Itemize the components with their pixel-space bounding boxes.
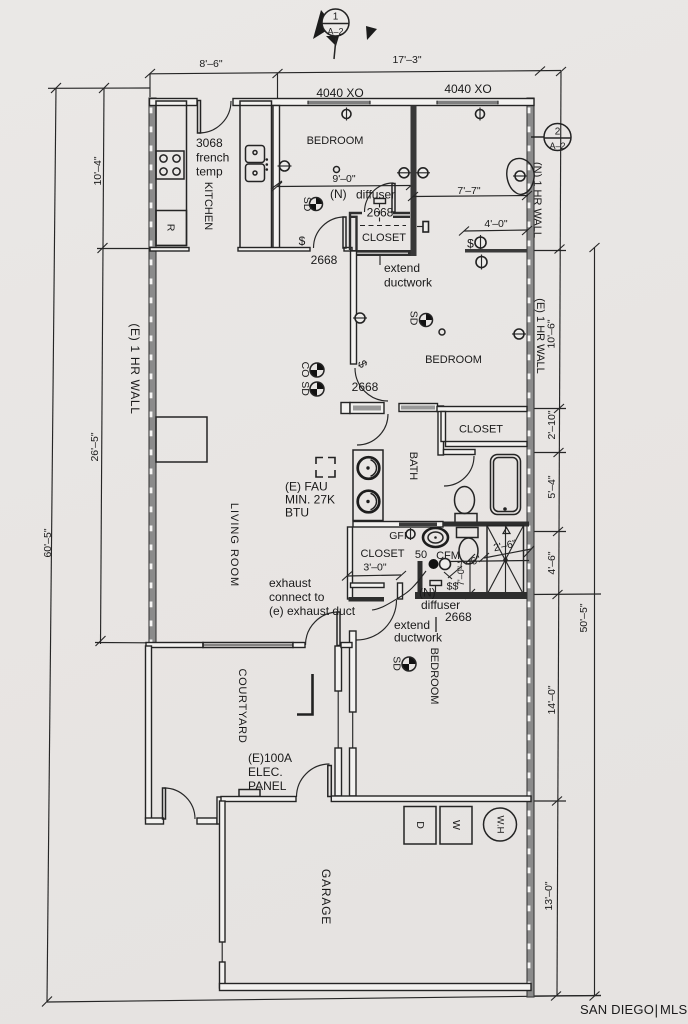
- svg-text:7'–7": 7'–7": [457, 185, 481, 197]
- svg-text:SAN DIEGO: SAN DIEGO: [580, 1002, 654, 1017]
- svg-text:$$: $$: [447, 581, 459, 593]
- svg-text:KITCHEN: KITCHEN: [202, 182, 214, 230]
- svg-text:13'–0": 13'–0": [543, 881, 555, 910]
- svg-text:(E) FAU: (E) FAU: [285, 480, 328, 494]
- svg-text:french: french: [196, 151, 229, 165]
- svg-text:GARAGE: GARAGE: [319, 869, 333, 925]
- svg-text:SD: SD: [391, 656, 403, 671]
- svg-text:BEDROOM: BEDROOM: [307, 135, 364, 147]
- svg-text:CO: CO: [299, 362, 311, 378]
- svg-text:COURTYARD: COURTYARD: [236, 669, 248, 744]
- svg-text:W.H: W.H: [495, 816, 506, 834]
- svg-text:60'–5": 60'–5": [42, 528, 54, 557]
- svg-text:3068: 3068: [196, 136, 223, 150]
- svg-text:4040 XO: 4040 XO: [444, 82, 491, 96]
- svg-text:MLS: MLS: [660, 1002, 687, 1017]
- svg-text:LIVING ROOM: LIVING ROOM: [228, 503, 240, 587]
- svg-text:CLOSET: CLOSET: [362, 232, 406, 244]
- svg-text:$: $: [299, 234, 306, 248]
- svg-text:BEDROOM: BEDROOM: [425, 354, 482, 366]
- svg-text:10'–6": 10'–6": [546, 319, 558, 348]
- svg-text:26'–5": 26'–5": [89, 432, 101, 461]
- svg-text:CLOSET: CLOSET: [459, 424, 503, 436]
- svg-text:2668: 2668: [311, 253, 338, 267]
- svg-text:SD: SD: [299, 381, 311, 396]
- svg-text:A–2: A–2: [549, 141, 565, 151]
- svg-text:4'–0": 4'–0": [484, 218, 508, 230]
- svg-text:(N): (N): [330, 187, 347, 201]
- svg-text:R: R: [165, 224, 177, 232]
- svg-text:connect to: connect to: [269, 590, 325, 604]
- svg-text:1: 1: [333, 12, 339, 23]
- svg-text:SD: SD: [408, 311, 420, 326]
- svg-text:2668: 2668: [445, 610, 472, 624]
- svg-text:(E)100A: (E)100A: [248, 751, 292, 765]
- svg-text:D: D: [414, 821, 426, 829]
- svg-text:exhaust: exhaust: [269, 576, 312, 590]
- svg-text:(E) 1 HR WALL: (E) 1 HR WALL: [534, 298, 546, 373]
- svg-text:2: 2: [555, 127, 561, 138]
- svg-text:(E) 1 HR WALL: (E) 1 HR WALL: [128, 323, 142, 414]
- svg-text:W: W: [450, 820, 462, 830]
- svg-text:50'–5": 50'–5": [578, 603, 590, 632]
- svg-text:2'–10": 2'–10": [546, 410, 558, 439]
- svg-text:MIN. 27K: MIN. 27K: [285, 493, 335, 507]
- svg-text:PANEL: PANEL: [248, 779, 287, 793]
- svg-text:BATH: BATH: [407, 452, 419, 481]
- svg-text:(e) exhaust duct: (e) exhaust duct: [269, 604, 356, 618]
- svg-text:4040 XO: 4040 XO: [316, 86, 363, 100]
- svg-text:extend: extend: [384, 261, 420, 275]
- svg-text:ELEC.: ELEC.: [248, 765, 283, 779]
- svg-text:50: 50: [415, 549, 427, 561]
- svg-text:ductwork: ductwork: [394, 631, 443, 645]
- svg-text:ductwork: ductwork: [384, 276, 433, 290]
- svg-text:10'–4": 10'–4": [92, 156, 104, 185]
- svg-text:14'–0": 14'–0": [546, 685, 558, 714]
- svg-text:2668: 2668: [352, 380, 379, 394]
- svg-text:8'–6": 8'–6": [199, 58, 223, 70]
- svg-text:17'–3": 17'–3": [392, 54, 421, 66]
- svg-text:4'–6": 4'–6": [546, 551, 558, 575]
- svg-text:GFI: GFI: [389, 530, 407, 542]
- svg-text:BEDROOM: BEDROOM: [428, 648, 440, 705]
- svg-text:|: |: [655, 1002, 659, 1018]
- svg-text:2668: 2668: [367, 206, 394, 220]
- svg-text:CLOSET: CLOSET: [360, 548, 404, 560]
- svg-text:temp: temp: [196, 165, 223, 179]
- svg-text:A–2: A–2: [327, 27, 343, 37]
- svg-text:$: $: [467, 237, 474, 251]
- svg-text:BTU: BTU: [285, 506, 309, 520]
- svg-text:9'–0": 9'–0": [332, 173, 356, 185]
- svg-text:3'–0": 3'–0": [363, 562, 387, 574]
- svg-text:5'–4": 5'–4": [546, 475, 558, 499]
